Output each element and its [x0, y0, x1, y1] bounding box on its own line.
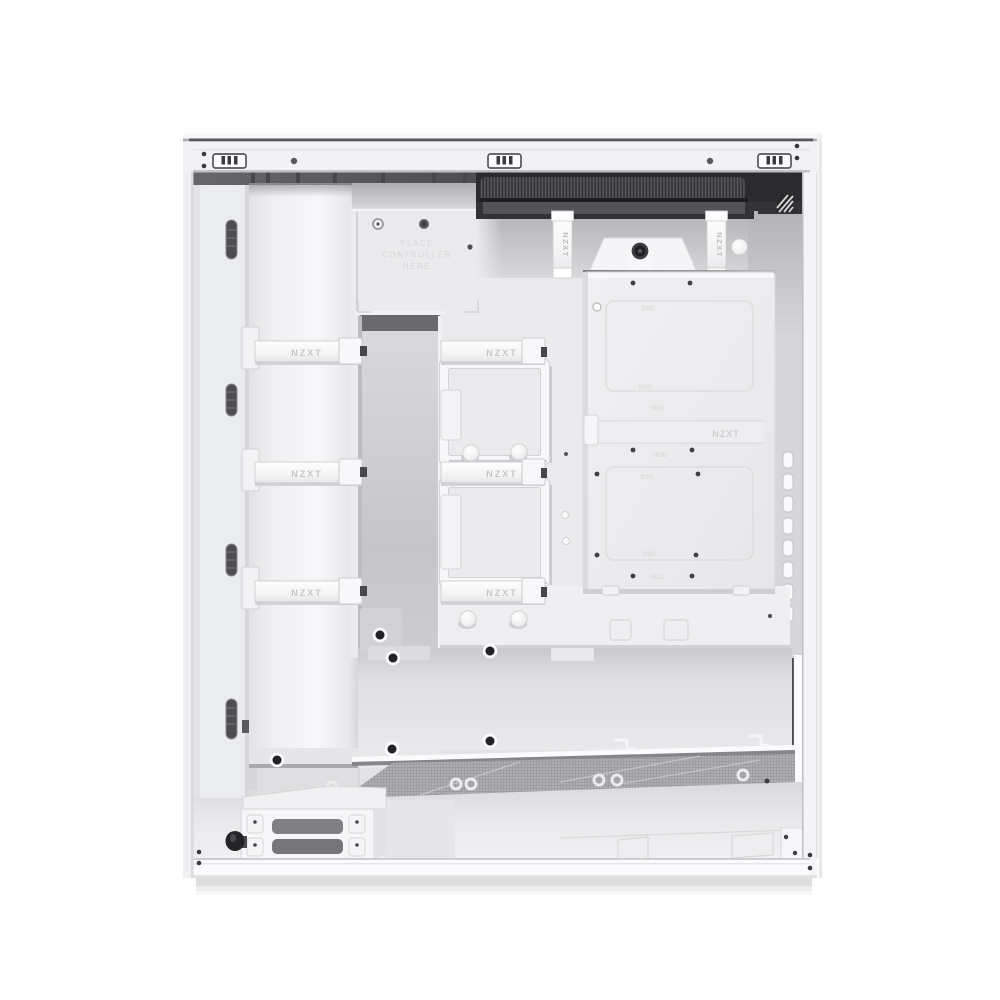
svg-text:NZXT: NZXT: [291, 588, 323, 598]
svg-text:NZXT: NZXT: [715, 232, 724, 258]
svg-text:CONTROLLER: CONTROLLER: [382, 251, 452, 260]
svg-text:NZXT: NZXT: [291, 348, 323, 358]
svg-text:HERE: HERE: [403, 262, 431, 271]
svg-text:HDD: HDD: [650, 574, 664, 581]
svg-text:NZXT: NZXT: [486, 469, 518, 479]
svg-text:NZXT: NZXT: [712, 429, 740, 439]
svg-text:PLACE: PLACE: [400, 239, 434, 248]
svg-text:SSD: SSD: [641, 305, 655, 312]
svg-text:NZXT: NZXT: [291, 469, 323, 479]
svg-text:HDD: HDD: [650, 405, 664, 412]
svg-text:SSD: SSD: [640, 474, 654, 481]
svg-text:SSD: SSD: [638, 384, 652, 391]
svg-text:HDD: HDD: [653, 452, 667, 459]
svg-text:NZXT: NZXT: [486, 348, 518, 358]
svg-text:SSD: SSD: [641, 551, 655, 558]
svg-text:NZXT: NZXT: [561, 232, 570, 258]
svg-text:NZXT: NZXT: [486, 588, 518, 598]
